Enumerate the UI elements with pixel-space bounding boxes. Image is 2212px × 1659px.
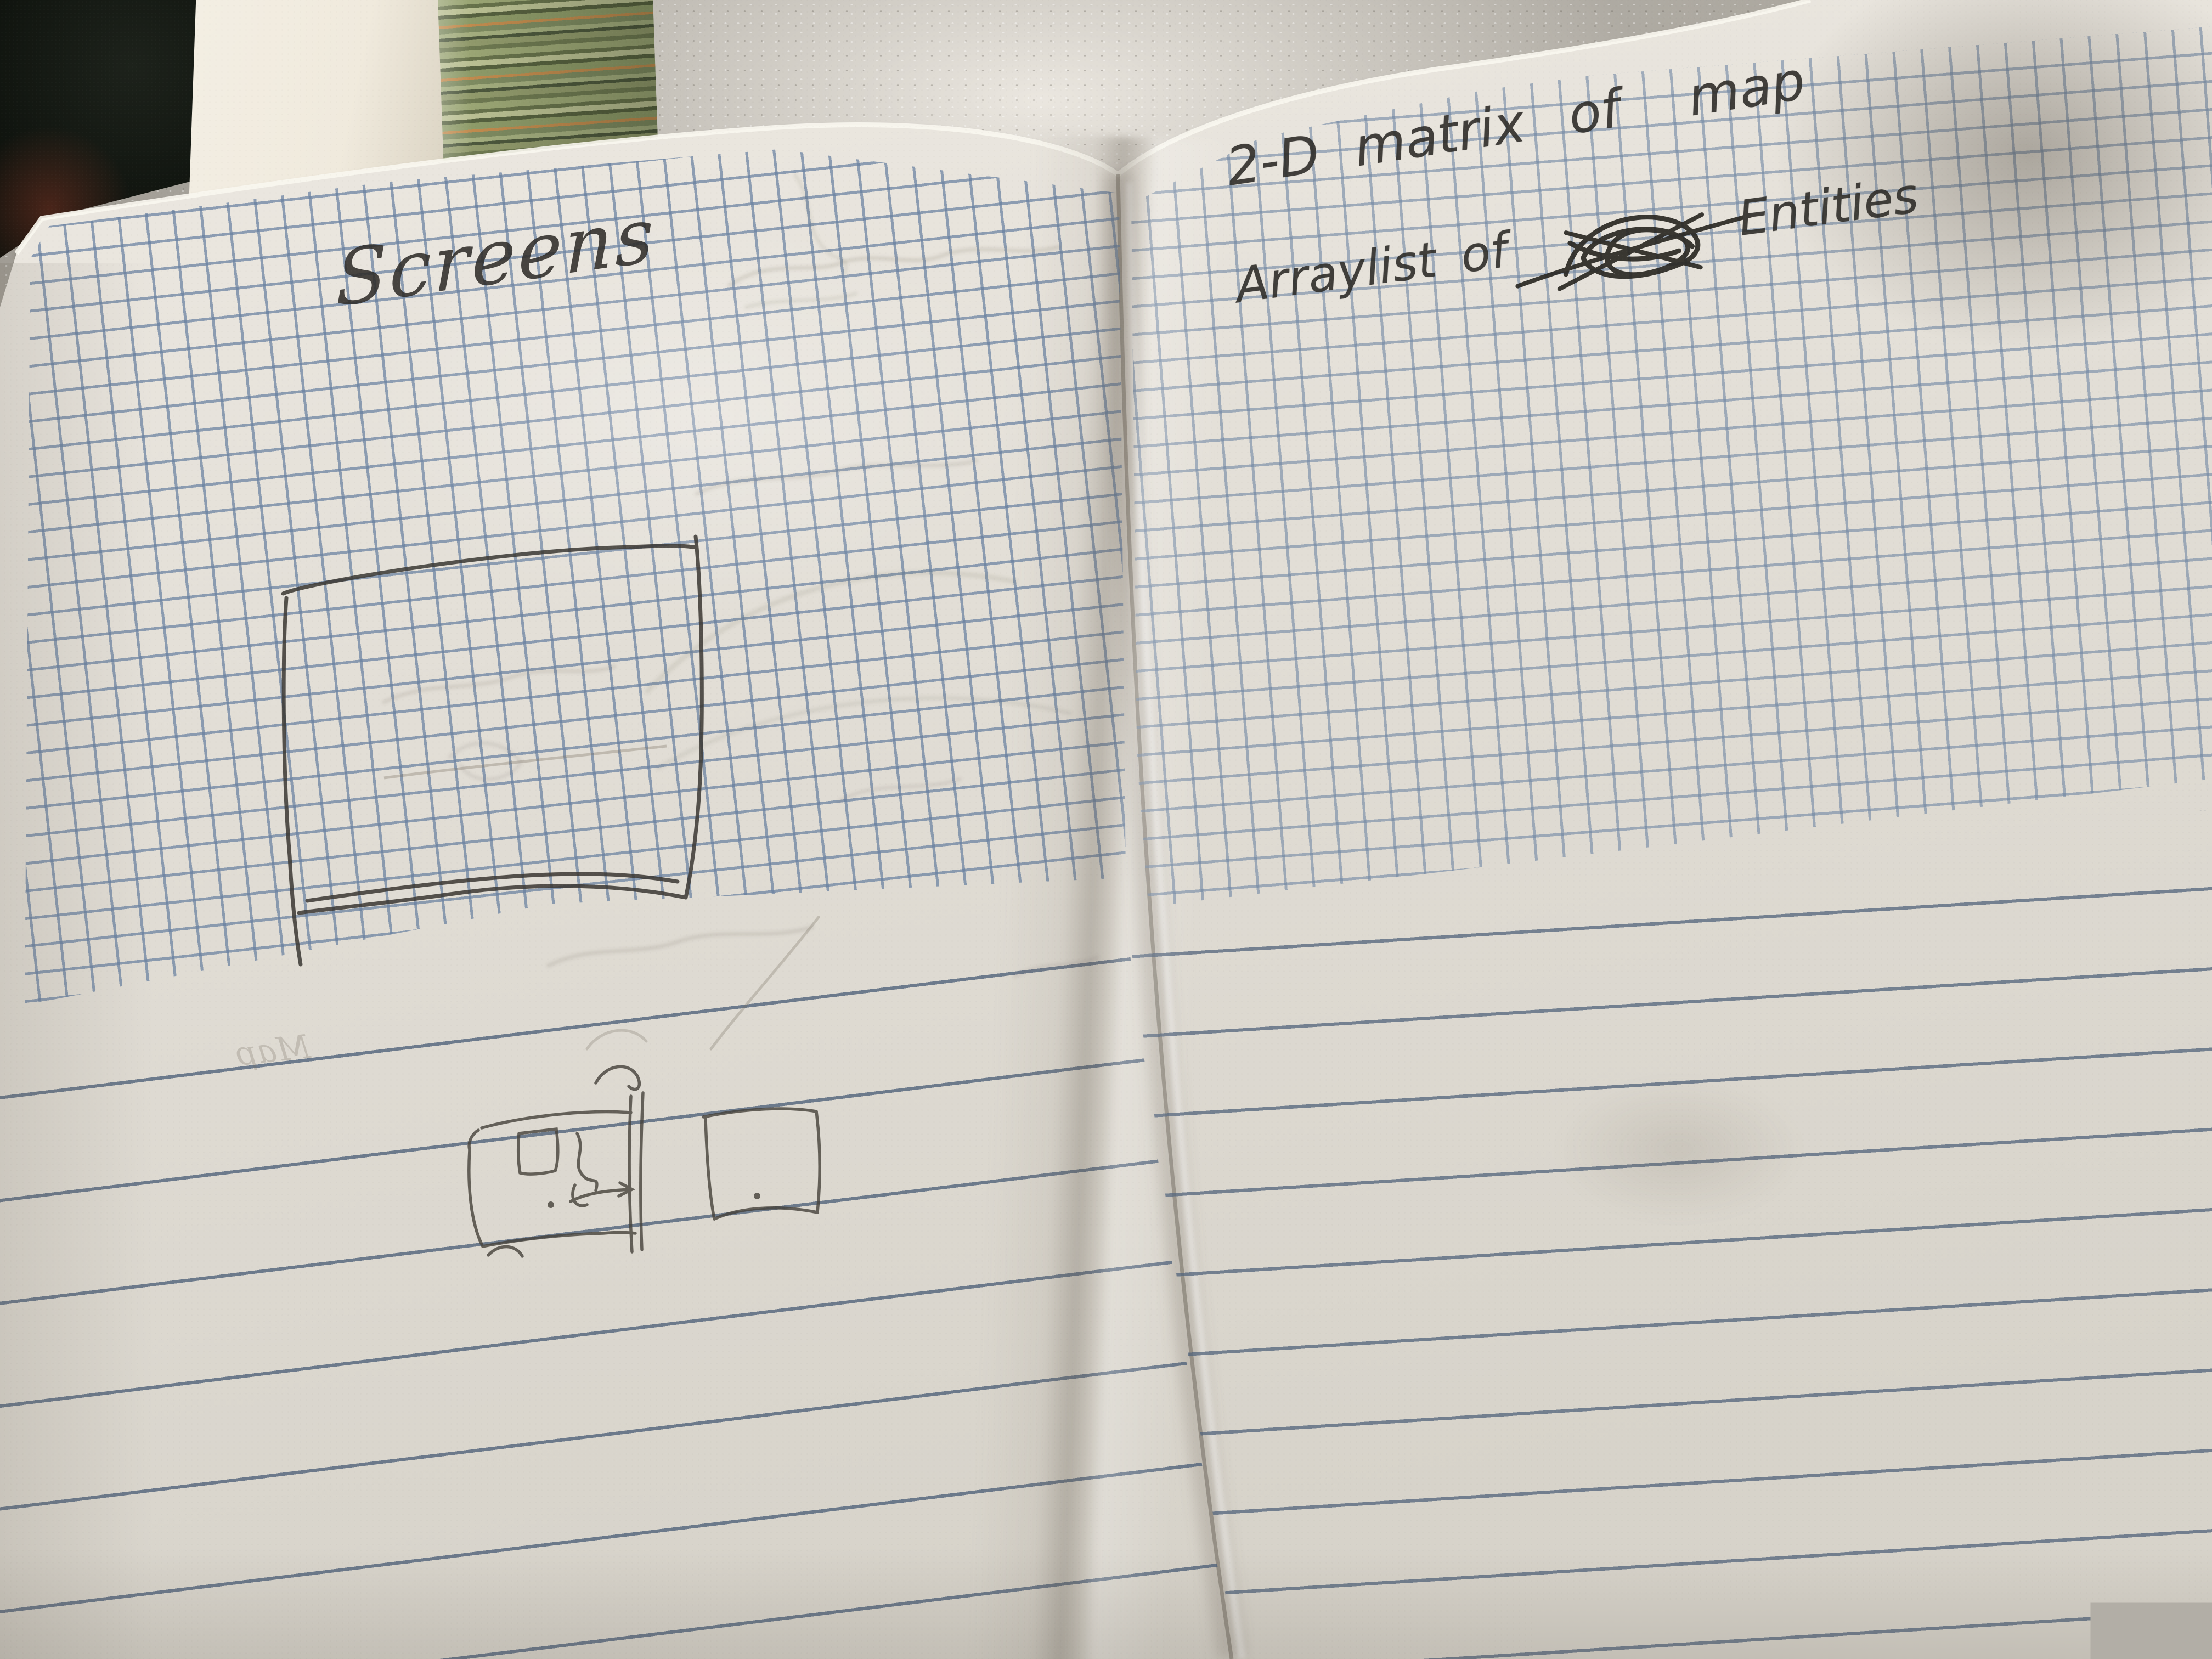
two-panel-doodle-sketch <box>469 1066 820 1256</box>
word-of: of <box>1564 78 1623 146</box>
word-of-2: of <box>1457 222 1511 284</box>
rectangle-inner-pencil-line <box>384 746 667 778</box>
screen-rectangle-sketch <box>283 537 702 964</box>
notebook-photo: Screens 2-D matrix of map Arraylist of E… <box>0 0 2212 1659</box>
bleed-through-word: Map <box>234 1028 312 1074</box>
